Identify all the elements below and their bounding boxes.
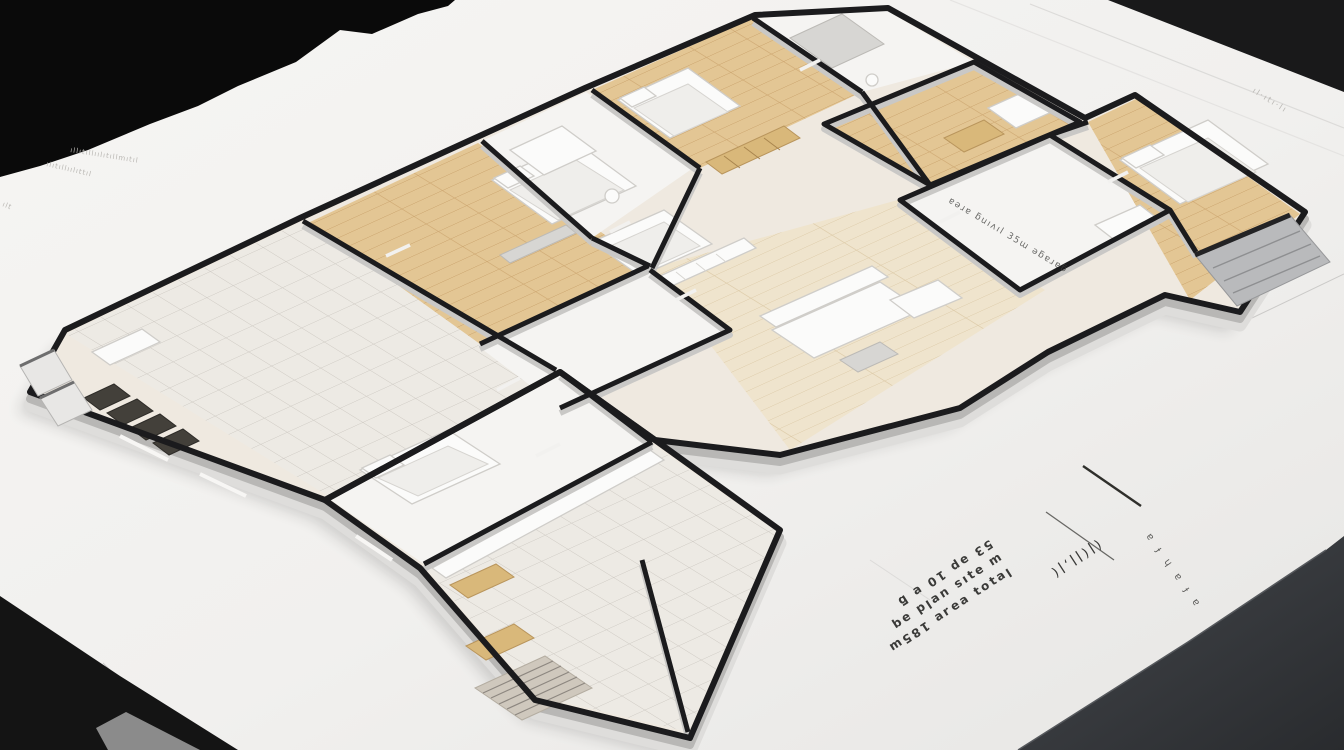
toilet (605, 189, 619, 203)
render-canvas: ıllıtıllıılıtıllmıtıl ılıtıllıılıttıl ıl… (0, 0, 1344, 750)
floorplan-render: ıllıtıllıılıtıllmıtıl ılıtıllıılıttıl ıl… (0, 0, 1344, 750)
sink (866, 74, 878, 86)
